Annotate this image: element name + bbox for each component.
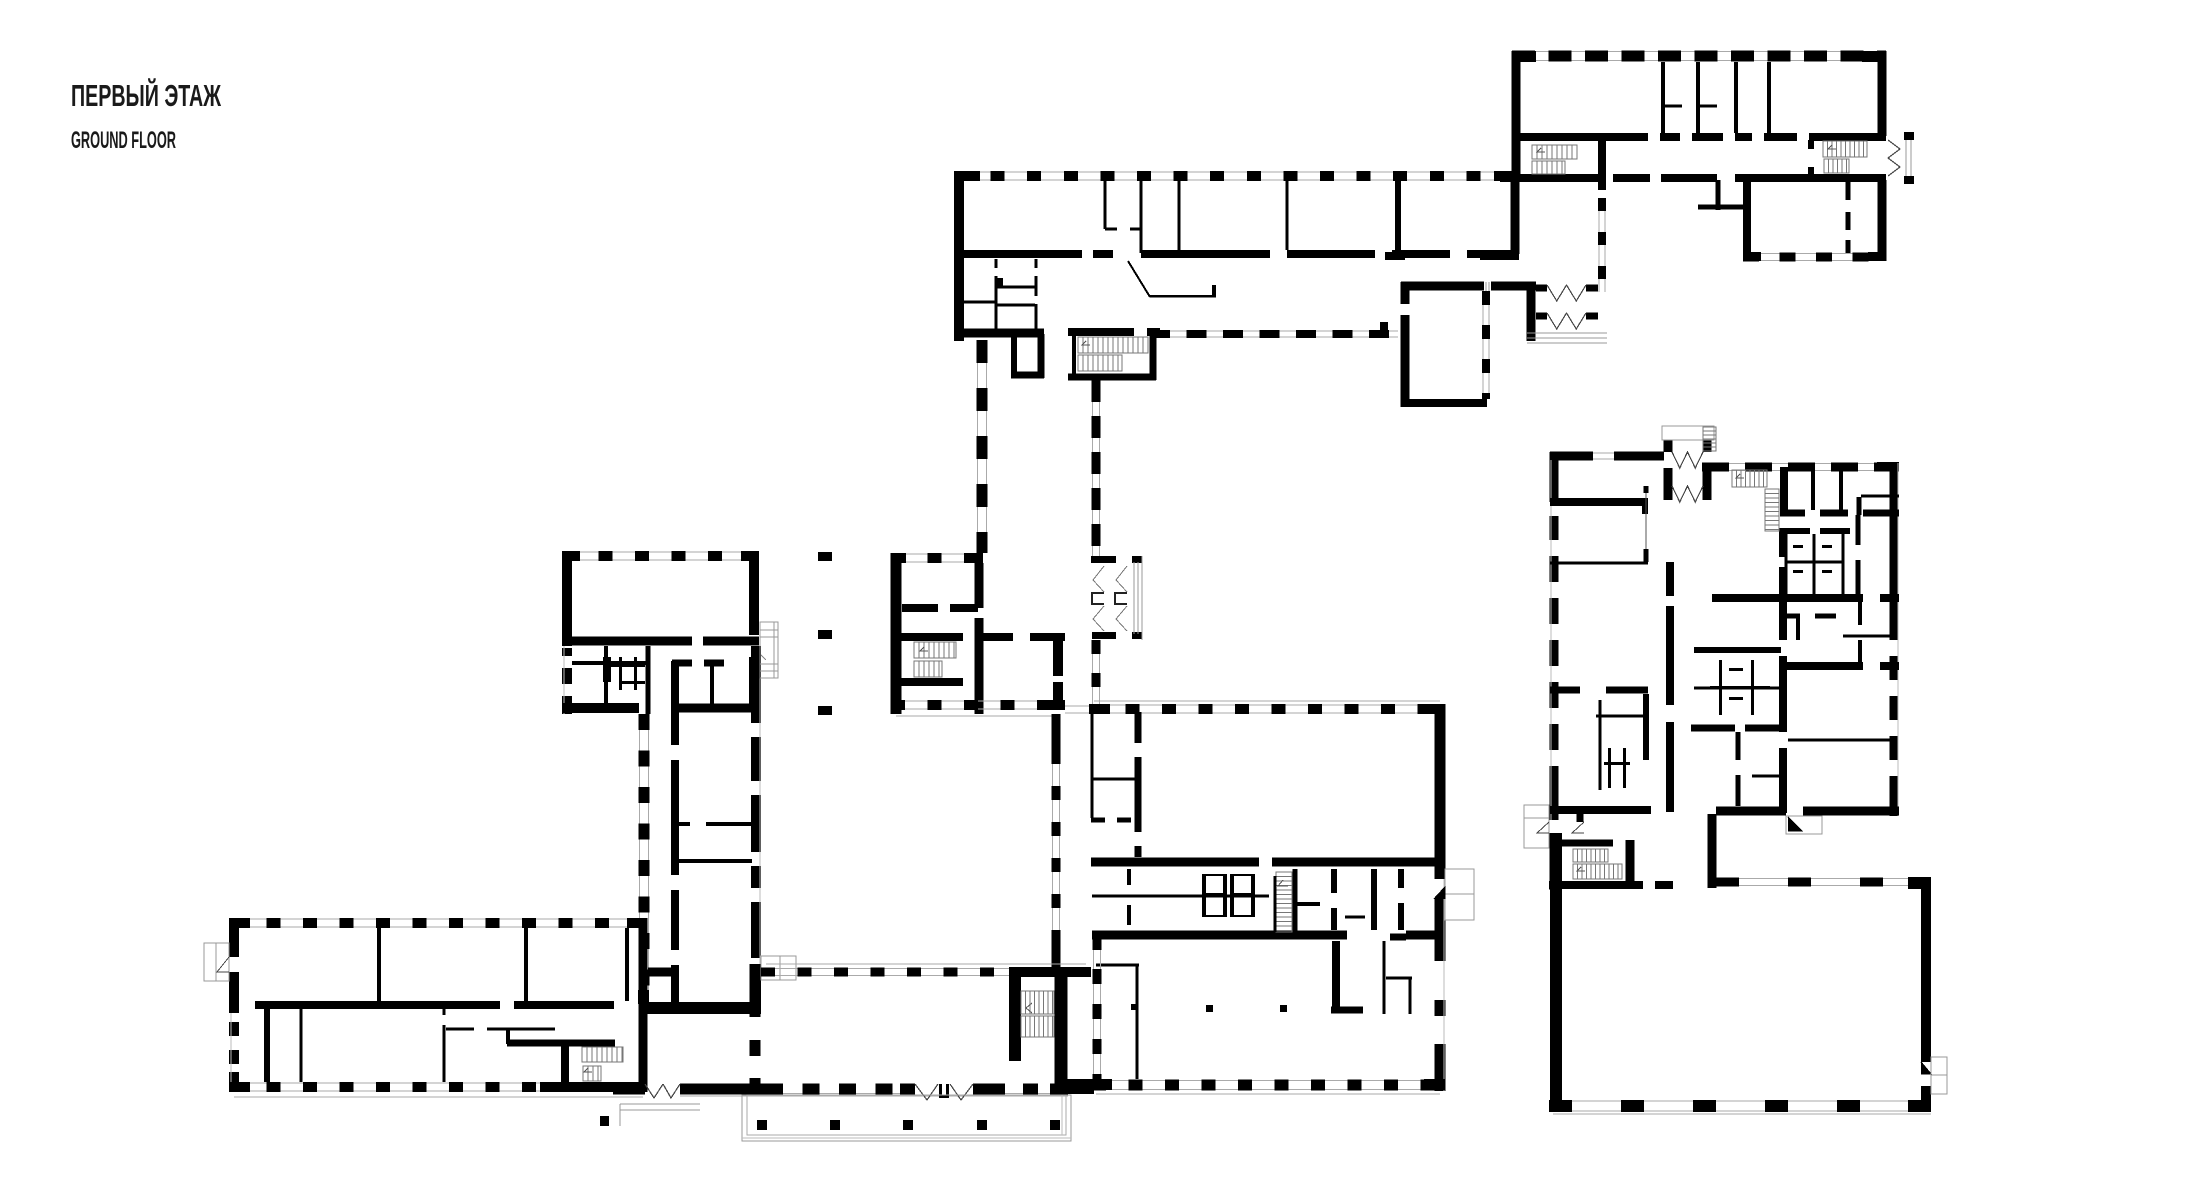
svg-text:ПЕРВЫЙ ЭТАЖ: ПЕРВЫЙ ЭТАЖ (71, 77, 222, 113)
svg-text:GROUND FLOOR: GROUND FLOOR (71, 127, 176, 154)
